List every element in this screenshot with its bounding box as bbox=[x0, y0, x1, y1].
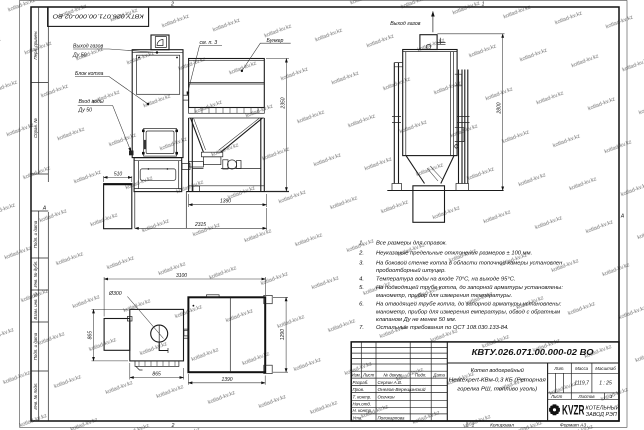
svg-text:Масса: Масса bbox=[575, 366, 589, 371]
svg-text:Лист: Лист bbox=[362, 372, 375, 377]
svg-text:Инв. № подл.: Инв. № подл. bbox=[33, 382, 38, 409]
svg-text:Heatexpert-КВм-0,3 КБ (Реторна: Heatexpert-КВм-0,3 КБ (Реторная bbox=[449, 377, 546, 383]
svg-text:Ду 50: Ду 50 bbox=[78, 108, 93, 114]
svg-text:865: 865 bbox=[152, 372, 161, 378]
svg-text:Лист: Лист bbox=[550, 394, 563, 399]
svg-text:Поликарпова: Поликарпова bbox=[378, 415, 405, 420]
svg-text:865: 865 bbox=[87, 331, 93, 340]
svg-text:А: А bbox=[620, 214, 625, 220]
svg-text:1290: 1290 bbox=[280, 329, 286, 340]
svg-text:горелка РШ, топливо уголь): горелка РШ, топливо уголь) bbox=[457, 387, 537, 393]
svg-text:пробоотборный штуцер.: пробоотборный штуцер. bbox=[376, 267, 446, 274]
svg-text:2800: 2800 bbox=[496, 102, 502, 114]
svg-text:см. п. 3: см. п. 3 bbox=[200, 40, 218, 46]
svg-text:Выход газов: Выход газов bbox=[73, 44, 104, 50]
svg-text:КОТЕЛЬНЫЙ: КОТЕЛЬНЫЙ bbox=[586, 403, 620, 411]
svg-text:2: 2 bbox=[171, 423, 175, 429]
svg-text:Сергин А.В.: Сергин А.В. bbox=[378, 380, 403, 385]
svg-text:4.: 4. bbox=[359, 277, 364, 283]
svg-text:3100: 3100 bbox=[176, 273, 187, 279]
svg-text:Блок котла: Блок котла bbox=[75, 71, 104, 77]
svg-text:Все размеры для справок.: Все размеры для справок. bbox=[376, 240, 447, 246]
svg-text:Подп. и дата: Подп. и дата bbox=[33, 332, 38, 360]
svg-text:КВТУ.026.071.00.000-02 ВО: КВТУ.026.071.00.000-02 ВО bbox=[472, 347, 594, 357]
svg-text:манометр, прибор для измерения: манометр, прибор для измерения температу… bbox=[376, 293, 512, 299]
svg-text:7.: 7. bbox=[359, 325, 364, 331]
svg-text:клапаном Ду не менее 50 мм.: клапаном Ду не менее 50 мм. bbox=[376, 317, 456, 323]
svg-text:3.: 3. bbox=[359, 260, 364, 266]
svg-text:1 : 25: 1 : 25 bbox=[599, 381, 612, 387]
svg-text:Ду 50: Ду 50 bbox=[72, 53, 87, 59]
svg-text:1119,7: 1119,7 bbox=[574, 381, 589, 387]
svg-text:На отводящей трубе котла, до з: На отводящей трубе котла, до запорной ар… bbox=[376, 301, 562, 308]
svg-text:Т. контр.: Т. контр. bbox=[353, 395, 372, 400]
svg-text:Формат А3: Формат А3 bbox=[560, 422, 587, 428]
svg-text:№ докум.: № докум. bbox=[383, 372, 402, 377]
svg-text:1390: 1390 bbox=[221, 377, 232, 383]
svg-text:2350: 2350 bbox=[280, 97, 286, 109]
svg-text:На подводящей трубе котла, до: На подводящей трубе котла, до запорной а… bbox=[376, 284, 563, 291]
svg-text:Подп. и дата: Подп. и дата bbox=[33, 220, 38, 248]
svg-text:А: А bbox=[42, 206, 47, 212]
svg-text:Выход газов: Выход газов bbox=[390, 21, 421, 27]
svg-text:Взам. инв. №: Взам. инв. № bbox=[33, 292, 38, 319]
svg-text:Масштаб: Масштаб bbox=[595, 366, 616, 371]
svg-text:KVZR: KVZR bbox=[562, 402, 585, 418]
svg-text:Справ. №: Справ. № bbox=[33, 118, 38, 138]
svg-text:манометр, прибор для измерения: манометр, прибор для измерения емператур… bbox=[376, 310, 560, 316]
svg-text:5.: 5. bbox=[359, 285, 364, 291]
svg-text:На боковой стенке котла в обла: На боковой стенке котла в области топочн… bbox=[376, 259, 563, 266]
svg-text:Пров.: Пров. bbox=[353, 387, 365, 392]
svg-text:510: 510 bbox=[114, 172, 123, 178]
svg-text:1: 1 bbox=[472, 422, 475, 428]
svg-text:1.: 1. bbox=[359, 240, 364, 246]
svg-text:Утв.: Утв. bbox=[353, 415, 363, 420]
svg-text:2315: 2315 bbox=[194, 222, 206, 228]
svg-text:Нач.отд.: Нач.отд. bbox=[353, 402, 372, 407]
svg-text:1390: 1390 bbox=[220, 199, 231, 205]
svg-text:Осечкин: Осечкин bbox=[378, 395, 396, 400]
svg-text:Ø300: Ø300 bbox=[108, 291, 122, 297]
svg-text:Температура воды на входе 70°С: Температура воды на входе 70°С, на выход… bbox=[376, 277, 516, 283]
svg-text:Инв. № дубл.: Инв. № дубл. bbox=[33, 260, 38, 287]
svg-text:Разраб.: Разраб. bbox=[353, 380, 369, 385]
svg-text:Дата: Дата bbox=[432, 372, 445, 377]
svg-text:Вход воды: Вход воды bbox=[79, 99, 104, 105]
svg-text:Подп.: Подп. bbox=[415, 372, 427, 377]
svg-text:1: 1 bbox=[482, 2, 485, 8]
svg-text:Неуказаные предельные отклонен: Неуказаные предельные отклонения размеро… bbox=[376, 250, 532, 256]
svg-text:Онегов-Верещинский: Онегов-Верещинский bbox=[378, 387, 427, 392]
svg-text:6.: 6. bbox=[359, 302, 364, 308]
svg-text:2: 2 bbox=[170, 2, 174, 8]
svg-text:Копировал: Копировал bbox=[490, 422, 514, 428]
svg-text:Лит.: Лит. bbox=[553, 366, 564, 371]
svg-text:Перв. примен.: Перв. примен. bbox=[33, 30, 38, 59]
svg-text:Листов: Листов bbox=[578, 394, 596, 399]
svg-text:Остальные требования по ОСТ 10: Остальные требования по ОСТ 108.030.133-… bbox=[376, 325, 509, 331]
svg-text:2.: 2. bbox=[358, 250, 364, 256]
svg-text:Н. контр.: Н. контр. bbox=[353, 408, 373, 413]
svg-text:КВТУ.026.071.00.000-02 ВО: КВТУ.026.071.00.000-02 ВО bbox=[52, 13, 144, 19]
svg-text:Изм.: Изм. bbox=[352, 372, 361, 377]
svg-text:Котел водогрейный: Котел водогрейный bbox=[471, 367, 524, 374]
svg-text:ЗАВОД РЭП: ЗАВОД РЭП bbox=[586, 412, 617, 418]
